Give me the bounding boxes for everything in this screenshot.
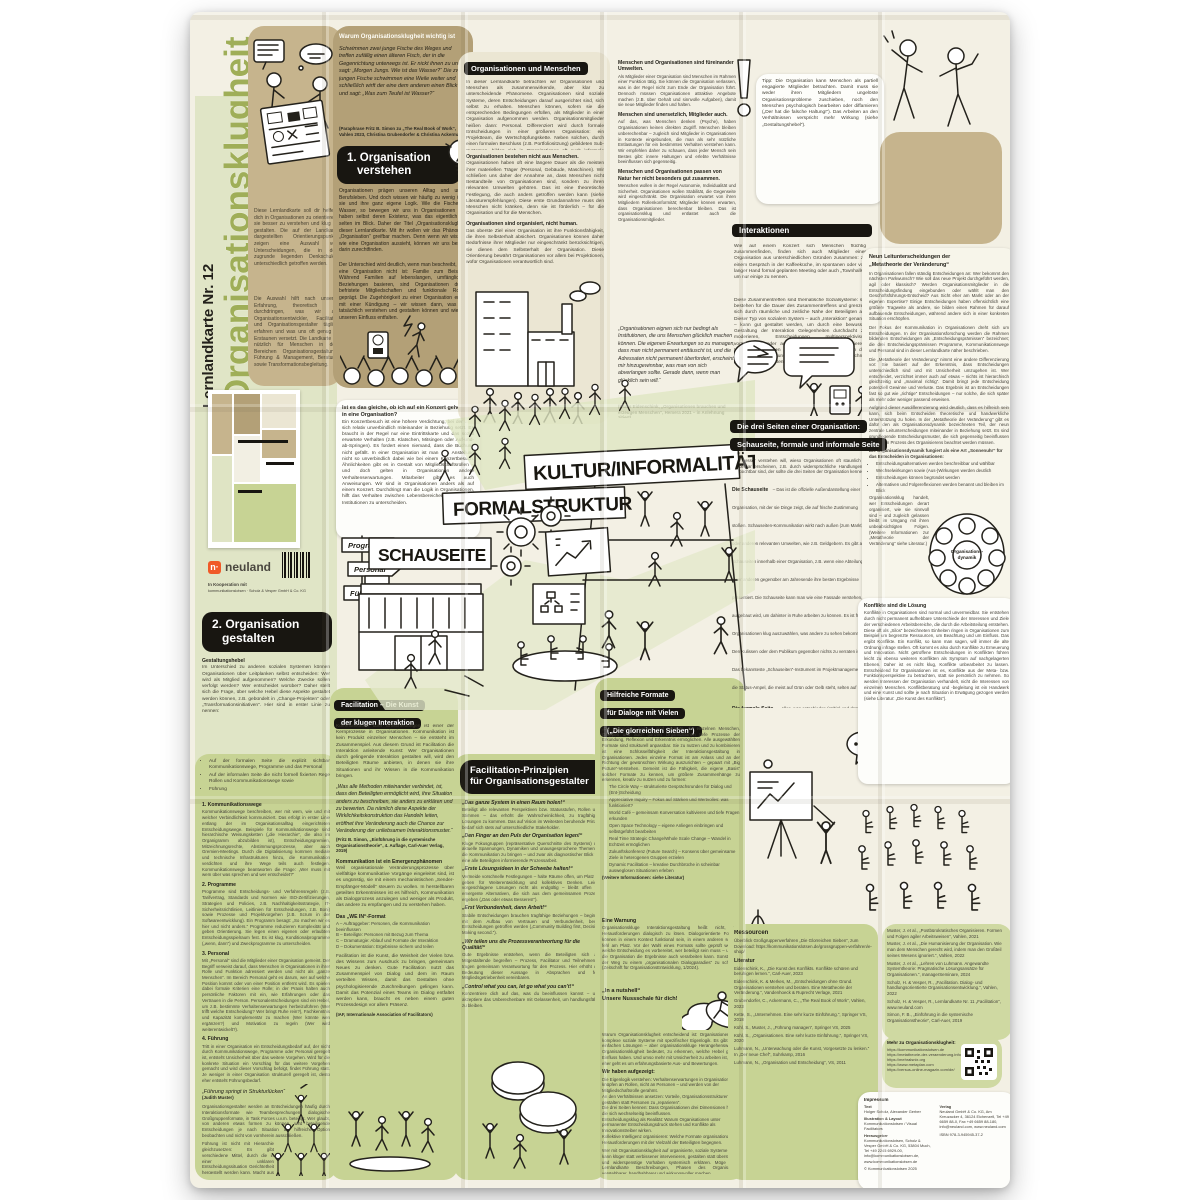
series-title: Lernlandkarte Nr. 12 — [200, 140, 217, 408]
format-item: Dynamic Facilitation – kreative Durchbrü… — [609, 862, 740, 873]
facilitation-sub2: Das „WE IN“-Format — [336, 914, 454, 920]
map-holders-illustration — [246, 32, 346, 202]
prinzip-body: Kluge Fokusgruppen (repräsentative Quers… — [462, 841, 600, 864]
hebel-4-body: Tritt in einer Organisation ein Entschei… — [202, 1044, 330, 1084]
format-item: The Circle Way – strukturierte Gesprächs… — [609, 784, 740, 795]
format-item: World Café – gemeinsam Konversation kult… — [609, 810, 740, 821]
links-qr-label: Mehr zu Organisationsklugheit: — [887, 1040, 963, 1046]
menschen-leadC: Menschen und Organisationen passen von N… — [618, 169, 736, 182]
metatheorie-heading1: Neun Leitunterscheidungen der — [869, 254, 1009, 261]
metatheorie-bullets: Entscheidungsalternativen werden beschre… — [869, 461, 1009, 494]
formate-intro: „Die glorreichen Sieben“ sind Formate, d… — [602, 726, 740, 783]
nutshell-point: Kollektive Intelligenz organisieren: Wel… — [602, 1134, 740, 1145]
links-box: Mehr zu Organisationsklugheit: https://k… — [882, 1036, 1002, 1088]
hebel-1-title: 1. Kommunikationswege — [202, 802, 330, 808]
pyramid-figures-illustration — [268, 1084, 334, 1176]
metatheorie-p1: In Organisationen fallen ständig Entsche… — [869, 271, 1009, 322]
metatheorie-bullet: Entscheidungen können begründet werden — [876, 475, 1009, 481]
tipp-box: Tipp: Die Organisation kann Menschen als… — [756, 74, 884, 204]
prinzip-title: „Erste Lösungsideen in der Schwebe halte… — [462, 866, 600, 872]
metatheorie-bullet: Entscheidungsalternativen werden beschre… — [876, 461, 1009, 467]
formate-list: The Circle Way – strukturierte Gesprächs… — [602, 784, 740, 873]
prinzip-title: „Erst Verbundenheit, dann Arbeit!“ — [462, 905, 600, 911]
format-item: Real Time Strategic Change/Whole Scale C… — [609, 836, 740, 847]
lit-item: Scholz, H. & Vesper, R., „Facilitation. … — [887, 980, 1007, 997]
nutshell-lead: Wir haben aufgezeigt: — [602, 1069, 740, 1075]
lit-item: Muster, J. et al., „Die Humanisierung de… — [887, 941, 1007, 958]
metatheorie-p3: Die „Metatheorie der Veränderung“ nimmt … — [869, 357, 1009, 403]
prinzipien-heading: Facilitation-Prinzipien für Organisation… — [460, 760, 616, 794]
neuland-logo-mark: n· — [208, 561, 221, 574]
wein-item-a: A – Auftraggeber: Personen, die Kommunik… — [336, 921, 454, 932]
masthead-intro-1: Diese Lernlandkarte soll dir helfen, dic… — [254, 208, 338, 292]
qr-code — [961, 1044, 997, 1080]
orgmensch-lead1-body: Organisationen haben oft eine längere Da… — [466, 161, 604, 217]
orgmensch-lead1: Organisationen bestehen nicht aus Mensch… — [466, 154, 604, 160]
prinzip-body: Konzentriere dich auf das, was du beeinf… — [462, 991, 600, 1008]
prinzip-body: Stabile Entscheidungen brauchen tragfähi… — [462, 913, 600, 936]
metatheorie-list-intro: Die Organisationsdynamik fungiert als ei… — [869, 448, 1009, 459]
facilitation-sub1: Kommunikation ist ein Emergenzphänomen — [336, 859, 454, 865]
poster-thumbnail — [208, 390, 300, 548]
greeting-figures-illustration — [874, 26, 990, 150]
gestalten-bullet: Führung — [209, 787, 335, 793]
why-quote: Schwimmen zwei junge Fische des Weges un… — [339, 46, 467, 126]
verstehen-p1: Organisationen prägen unseren Alltag und… — [339, 188, 467, 258]
konflikte-body: Konflikte in Organisationen sind normal … — [864, 610, 1009, 702]
orgmensch-heading: Organisationen und Menschen — [464, 62, 588, 75]
impressum-heading: Impressum — [864, 1097, 1009, 1103]
section-2-badge-line2: gestalten — [212, 632, 322, 646]
konflikte-heading: Konflikte sind die Lösung — [864, 603, 1009, 609]
lit-item: Luhmann, N., „Organisation und Entscheid… — [734, 1060, 872, 1066]
group-figures-illustration — [340, 1090, 440, 1174]
orgmensch-intro: In dieser Lernlandkarte betrachten wir O… — [466, 80, 604, 150]
impressum-card: Impressum Text Holger Scholz, Alexander … — [858, 1092, 1010, 1188]
lit-item: Scholz, H. & Vesper, R., Lernlandkarte N… — [887, 999, 1007, 1010]
hebel-3-title: 3. Personal — [202, 951, 330, 957]
prinzipien-list: „Das ganze System in einen Raum holen!“ … — [462, 800, 600, 1032]
organisationsdynamik-label1: Organisations- — [951, 549, 984, 554]
format-item: Appreciative Inquiry – Fokus auf Stärken… — [609, 797, 740, 808]
gestalten-outro-2: Führung ist nicht mit Hierarchie gleichz… — [202, 1141, 274, 1174]
sign-schau-text: SCHAUSEITE — [378, 545, 486, 565]
coop-partner: kommunikationslotsen · Scholz & Vesper G… — [208, 589, 336, 594]
impressum-hrsg-value: Kommunikationslotsen, Scholz & Vesper Gm… — [864, 1138, 934, 1163]
menschen-column: Menschen und Organisationen sind füreina… — [618, 60, 736, 322]
hebel-4-title: 4. Führung — [202, 1036, 330, 1042]
lit-item: Kühl, S., „Organisationen. Eine sehr kur… — [734, 1033, 872, 1044]
facilitation-p1: Kommunikation über Entscheidungen ist ei… — [336, 724, 454, 780]
gestalten-lead: Gestaltungshebel — [202, 658, 330, 664]
neuland-logo: n· neuland — [208, 560, 278, 578]
section-2-badge-line1: 2. Organisation — [212, 618, 322, 632]
formate-note: (Weitere Informationen: siehe Literatur) — [602, 875, 740, 881]
interaktionen-p1: Wie auf einem Konzert sich Menschen flüc… — [734, 244, 866, 296]
section-1-badge-line2: verstehen — [347, 165, 451, 178]
metatheorie-p5: Organisationsklug handelt, wer Entscheid… — [869, 495, 929, 546]
ressourcen-download: Überblick Großgruppenverfahren „Die Glor… — [734, 938, 872, 955]
impressum-illu-value: Kommunikationslotsen / Visual Facilitato… — [864, 1121, 934, 1131]
gestalten-bullet: Auf der informalen Seite die nicht forme… — [209, 773, 335, 785]
wein-item-d: D – Dokumentation: Ergebnisse sichern un… — [336, 944, 454, 950]
gestalten-bullet: Auf der formalen Seite die explizit sich… — [209, 759, 335, 771]
gestalten-bullets: Auf der formalen Seite die explizit sich… — [202, 759, 335, 795]
nutshell-point: Die Eigenlogik verstehen: Verhaltenserwa… — [602, 1077, 740, 1094]
nutshell-body: Warum Organisationsklugheit entscheidend… — [602, 1032, 740, 1174]
lit-item: Muster, J. et al., „Postbürokratisches O… — [887, 928, 1007, 939]
section-2-badge: 2. Organisation gestalten — [202, 612, 332, 652]
lit-item: Grubendorfer, C., Ackermann, C., „The Re… — [734, 998, 872, 1009]
metatheorie-p2: Der Fokus der Kommunikation in Organisat… — [869, 325, 1009, 354]
impressum-text-value: Holger Scholz, Alexander Gerber — [864, 1109, 934, 1114]
orgmensch-lead2-body: Das oberste Ziel einer Organisation ist … — [466, 229, 604, 266]
coop-label: In Kooperation mit — [208, 582, 333, 588]
format-item: Open Space Technology – eigene Anliegen … — [609, 823, 740, 834]
dreiseiten-heading: Die drei Seiten einer Organisation: Scha… — [730, 416, 887, 452]
nutshell-outro: Wer mit Organisationsklugheit auf organi… — [602, 1148, 740, 1174]
warnung-body: Organisationskluge Interaktionsgestaltun… — [602, 925, 740, 971]
nutshell-p1: Warum Organisationsklugheit entscheidend… — [602, 1032, 740, 1066]
hebel-3-body: Mit „Personal“ sind die Mitglieder einer… — [202, 958, 330, 1032]
section-1-badge: 1. Organisation verstehen — [337, 146, 461, 184]
prinzip-body: Vermeide vorschnelle Festlegungen – halt… — [462, 874, 600, 903]
konflikte-box: Konflikte sind die Lösung Konflikte in O… — [858, 598, 1010, 784]
facilitation-sub1-body: Weil organisationale Veränderungsprozess… — [336, 866, 454, 910]
hebel-2-title: 2. Programme — [202, 882, 330, 888]
lit-item: Simon, F. B., „Einführung in die systemi… — [887, 1012, 1007, 1023]
metatheorie-heading2: „Metatheorie der Veränderung“ — [869, 262, 1009, 269]
lit-item: Eidenschink, K., „Die Kunst des Konflikt… — [734, 966, 872, 977]
prinzip-title: „Das ganze System in einen Raum holen!“ — [462, 800, 600, 806]
impressum-isbn: ISBN 978-3-945945-37-2 — [940, 1132, 1010, 1137]
formate-body: „Die glorreichen Sieben“ sind Formate, d… — [602, 726, 740, 914]
barcode — [282, 552, 312, 578]
discs-figures-illustration — [476, 1032, 586, 1172]
organisationsdynamik-diagram: Organisations- dynamik — [928, 512, 1006, 598]
menschen-leadC-body: Menschen wollen in der Regel Autonomie, … — [618, 183, 736, 223]
section-1-badge-line1: 1. Organisation — [347, 152, 451, 165]
menschen-leadB-body: Auf das, was Menschen denken (Psyche), h… — [618, 119, 736, 165]
lernlandkarte-poster: Lernlandkarte Nr. 12 Organisationsklughe… — [190, 12, 1010, 1188]
interaktionen-heading: Interaktionen — [732, 224, 872, 237]
lit-item: Eidenschink, K. & Merkes, M., „Entscheid… — [734, 979, 872, 996]
link-item: https://versus-online-magazin.com/de/ — [887, 1067, 963, 1072]
screenshot-page: Lernlandkarte Nr. 12 Organisationsklughe… — [0, 0, 1200, 1200]
wein-item-c: C – Dramaturgie: Ablauf und Formate der … — [336, 938, 454, 944]
gestalten-intro-block: Gestaltungshebel Im Unterschied zu ander… — [202, 658, 330, 750]
tipp-text: Tipp: Die Organisation kann Menschen als… — [762, 79, 878, 129]
prinzip-body: Gute Ergebnisse entstehen, wenn die Bete… — [462, 952, 600, 981]
neuland-logo-word: neuland — [225, 560, 271, 574]
hebel-2-body: Programme sind Entscheidungs- und Verfah… — [202, 889, 330, 946]
prinzip-title: „Den Finger an den Puls der Organisation… — [462, 833, 600, 839]
prinzip-body: Beteiligt alle relevanten Perspektiven b… — [462, 807, 600, 830]
facilitation-quote-source: (Fritz B. Simon, „Einführung in die syst… — [336, 837, 454, 854]
lit-item: Luhmann, N., „Unterwachung oder die Kuns… — [734, 1046, 872, 1057]
ressourcen-block: Ressourcen Überblick Großgruppenverfahre… — [734, 930, 872, 1174]
prinzip-title: „Control what you can, let go what you c… — [462, 984, 600, 990]
nutshell-point: Die drei Seiten kennen: Dass Organisatio… — [602, 1105, 740, 1116]
central-organisation-illustration: KULTUR/INFORMALITÄT FORMALSTRUKTUR SCHAU… — [325, 380, 755, 710]
lit-item: Kette, S., „Unternehmen. Eine sehr kurze… — [734, 1012, 872, 1023]
prinzip-title: „Wir teilen uns die Prozessverantwortung… — [462, 939, 600, 952]
nutshell-point: An den Verhältnissen ansetzen: Vorteile,… — [602, 1094, 740, 1105]
orgmensch-lead2: Organisationen sind organisiert, nicht h… — [466, 221, 604, 227]
impressum-copyright: © Kommunikationslotsen 2025 — [864, 1166, 934, 1171]
hebel-1-body: Kommunikationswege beschreiben, wer mit … — [202, 809, 330, 878]
metatheorie-bullet: Alternativen und Folgereflexionen werden… — [876, 482, 1009, 493]
menschen-leadB: Menschen sind unersetzlich, Mitglieder a… — [618, 112, 736, 118]
organisationsdynamik-label2: dynamik — [958, 555, 977, 560]
prinzipien-heading-line2: für Organisationsgestalter — [470, 777, 606, 788]
verstehen-p2: Der Unterschied wird deutlich, wenn man … — [339, 262, 467, 320]
exclamation-icon — [728, 56, 758, 122]
nutshell-point: Entscheidungsklug als Realität: Warum Or… — [602, 1117, 740, 1134]
why-heading: Warum Organisationsklugheit wichtig ist — [339, 34, 469, 40]
masthead-intro-2: Die Auswahl hilft nach unserer Erfahrung… — [254, 296, 338, 382]
orgmensch-leads: Organisationen bestehen nicht aus Mensch… — [466, 154, 604, 276]
menschen-leadA-body: Als Mitglieder einer Organisation sind M… — [618, 74, 736, 108]
menschen-leadA: Menschen und Organisationen sind füreina… — [618, 60, 736, 73]
gestalten-intro: Im Unterschied zu anderen sozialen Syste… — [202, 665, 330, 715]
facilitation-iaf: (IAF, Internationale Association of Faci… — [336, 1012, 454, 1018]
warnung-block: Eine Warnung Organisationskluge Interakt… — [602, 918, 740, 984]
dreiseiten-heading-line1: Die drei Seiten einer Organisation: — [730, 420, 867, 433]
facilitation-outro: Facilitation ist die Kunst, die Weisheit… — [336, 954, 454, 1010]
dreiseiten-heading-line2: Schauseite, formale und informale Seite — [730, 438, 887, 451]
lit-item: Kühl, S., Muster, J., „Führung managen“,… — [734, 1025, 872, 1031]
warnung-heading: Eine Warnung — [602, 918, 740, 924]
impressum-verlag-value: Neuland GmbH & Co. KG, Am Kreuzacker 4, … — [940, 1109, 1010, 1129]
lit-item: Muster, J. et al., „Lehren von Luhmann. … — [887, 961, 1007, 978]
metatheorie-bullet: Wechselwirkungen sowie (Aus-)Wirkungen w… — [876, 468, 1009, 474]
ressourcen-heading: Ressourcen — [734, 930, 872, 936]
facilitation-quote: „Was alle Methoden miteinander verbindet… — [336, 784, 454, 835]
literatur-label: Literatur — [734, 958, 872, 964]
format-item: Zukunftskonferenz (Future Search) – Kons… — [609, 849, 740, 860]
ressourcen-block-2: Muster, J. et al., „Postbürokratisches O… — [882, 924, 1010, 1040]
metatheorie-p4: Aufgrund dieser Ausdifferenzierung wird … — [869, 405, 1009, 445]
